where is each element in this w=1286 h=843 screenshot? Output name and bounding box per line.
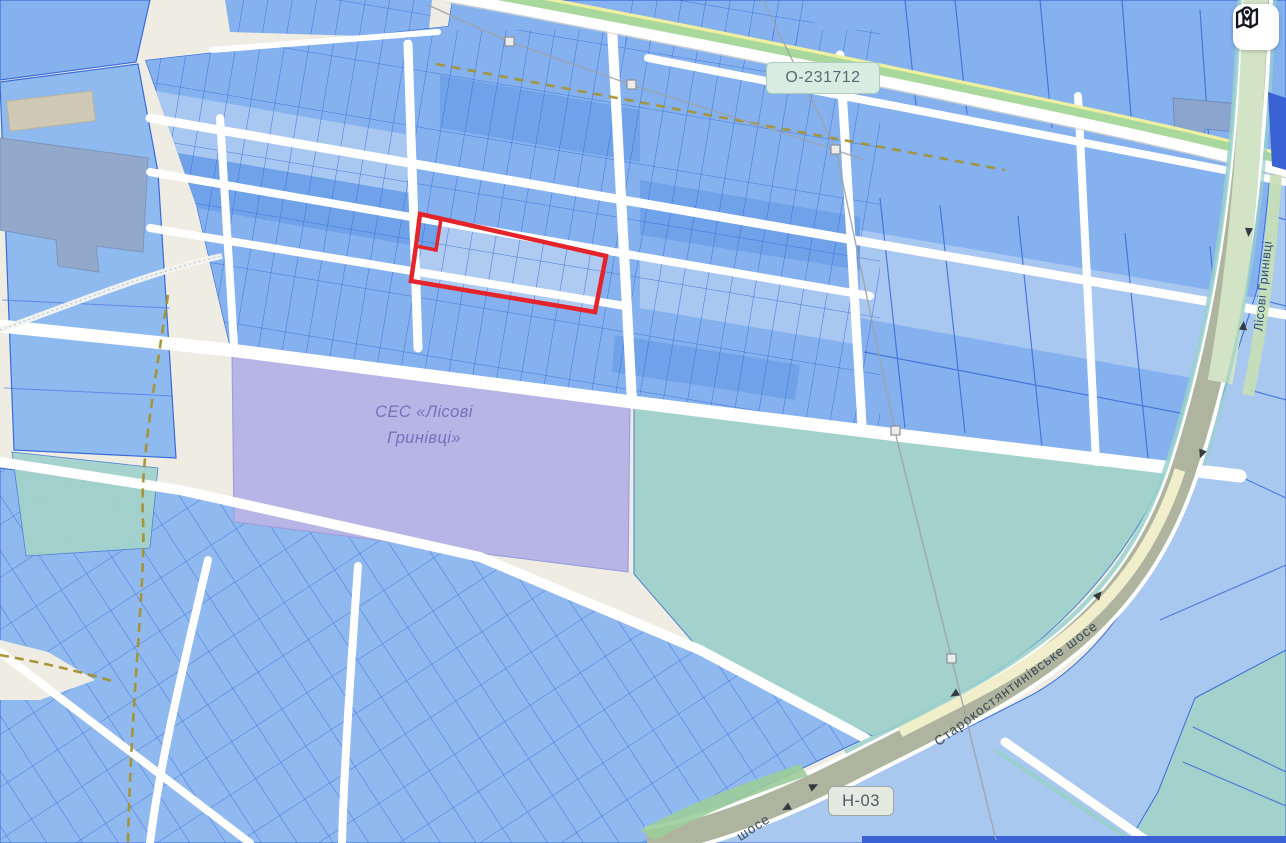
map-canvas[interactable]: О-231712 Н-03 Старокостянтинівське шосе … — [0, 0, 1286, 843]
map-layers — [0, 0, 1286, 843]
map-button[interactable] — [1233, 4, 1279, 50]
